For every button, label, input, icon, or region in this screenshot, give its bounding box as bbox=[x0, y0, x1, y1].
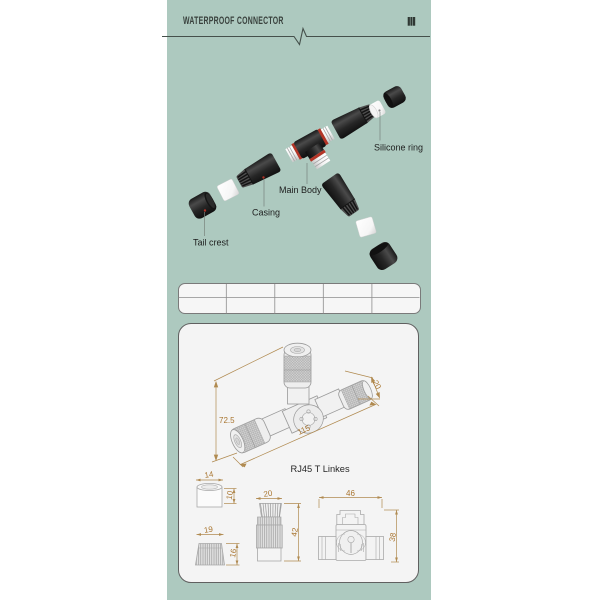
svg-text:20: 20 bbox=[263, 488, 274, 499]
svg-text:RJ45 T Linkes: RJ45 T Linkes bbox=[291, 464, 350, 474]
svg-text:19: 19 bbox=[203, 524, 214, 535]
svg-text:72.5: 72.5 bbox=[219, 416, 235, 425]
svg-text:14: 14 bbox=[204, 469, 215, 480]
svg-text:46: 46 bbox=[346, 489, 355, 498]
